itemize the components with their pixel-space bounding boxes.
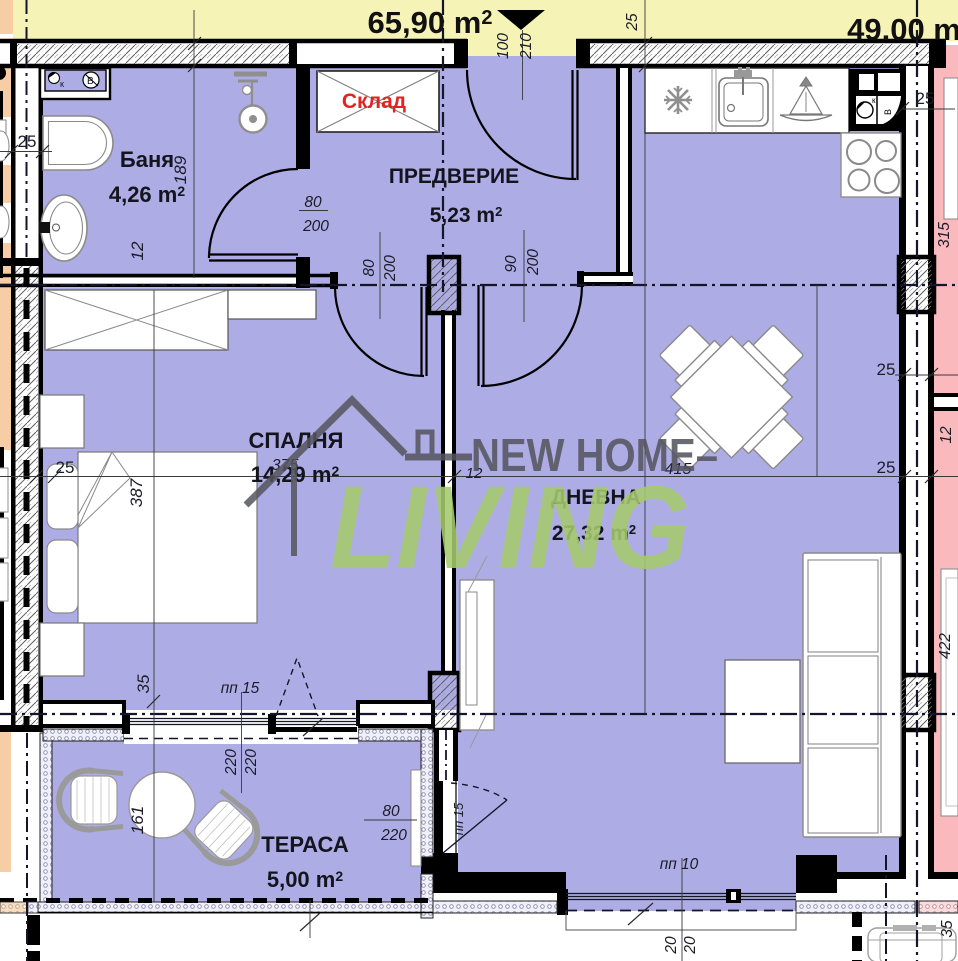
svg-text:B: B [883,109,893,115]
svg-text:Склад: Склад [342,90,406,113]
svg-text:25: 25 [18,132,37,151]
svg-text:80: 80 [361,259,378,277]
svg-text:LIVING: LIVING [330,462,690,594]
svg-text:387: 387 [127,478,146,507]
svg-text:ТЕРАСА: ТЕРАСА [261,832,349,857]
svg-text:4,26 m2: 4,26 m2 [109,182,186,207]
svg-text:220: 220 [223,749,240,776]
svg-text:25: 25 [877,360,896,379]
svg-text:20: 20 [663,936,680,955]
svg-text:422: 422 [937,633,954,659]
svg-text:Баня: Баня [120,147,174,172]
svg-text:к: к [872,96,876,105]
svg-text:5,23 m2: 5,23 m2 [430,204,503,227]
svg-text:СПАЛНЯ: СПАЛНЯ [249,428,344,453]
svg-text:49.00 m: 49.00 m [847,12,958,47]
svg-text:ПРЕДВЕРИЕ: ПРЕДВЕРИЕ [389,165,519,188]
svg-text:200: 200 [525,249,542,276]
svg-text:220: 220 [243,749,260,776]
svg-text:80: 80 [382,803,400,820]
svg-text:65,90 m2: 65,90 m2 [368,5,493,40]
svg-text:100: 100 [495,33,512,59]
svg-text:35: 35 [134,674,153,693]
svg-text:20: 20 [682,936,699,955]
svg-text:35: 35 [939,920,956,938]
svg-text:80: 80 [304,194,322,211]
svg-text:25: 25 [877,458,896,477]
svg-text:200: 200 [302,218,329,235]
svg-text:25: 25 [624,13,641,32]
svg-text:25: 25 [56,458,75,477]
svg-text:315: 315 [936,222,953,248]
svg-text:5,00 m2: 5,00 m2 [267,867,344,892]
svg-text:пп 10: пп 10 [660,856,699,873]
svg-text:пп 15: пп 15 [221,680,260,697]
svg-text:220: 220 [380,827,407,844]
svg-text:189: 189 [171,155,190,184]
svg-text:210: 210 [518,33,535,60]
svg-text:12: 12 [938,426,955,444]
svg-text:пп 15: пп 15 [451,802,466,835]
svg-text:161: 161 [128,806,147,834]
svg-text:12: 12 [128,241,147,260]
svg-text:к: к [60,79,64,89]
svg-text:25: 25 [916,89,935,108]
svg-text:90: 90 [503,255,520,273]
svg-text:200: 200 [382,255,399,282]
